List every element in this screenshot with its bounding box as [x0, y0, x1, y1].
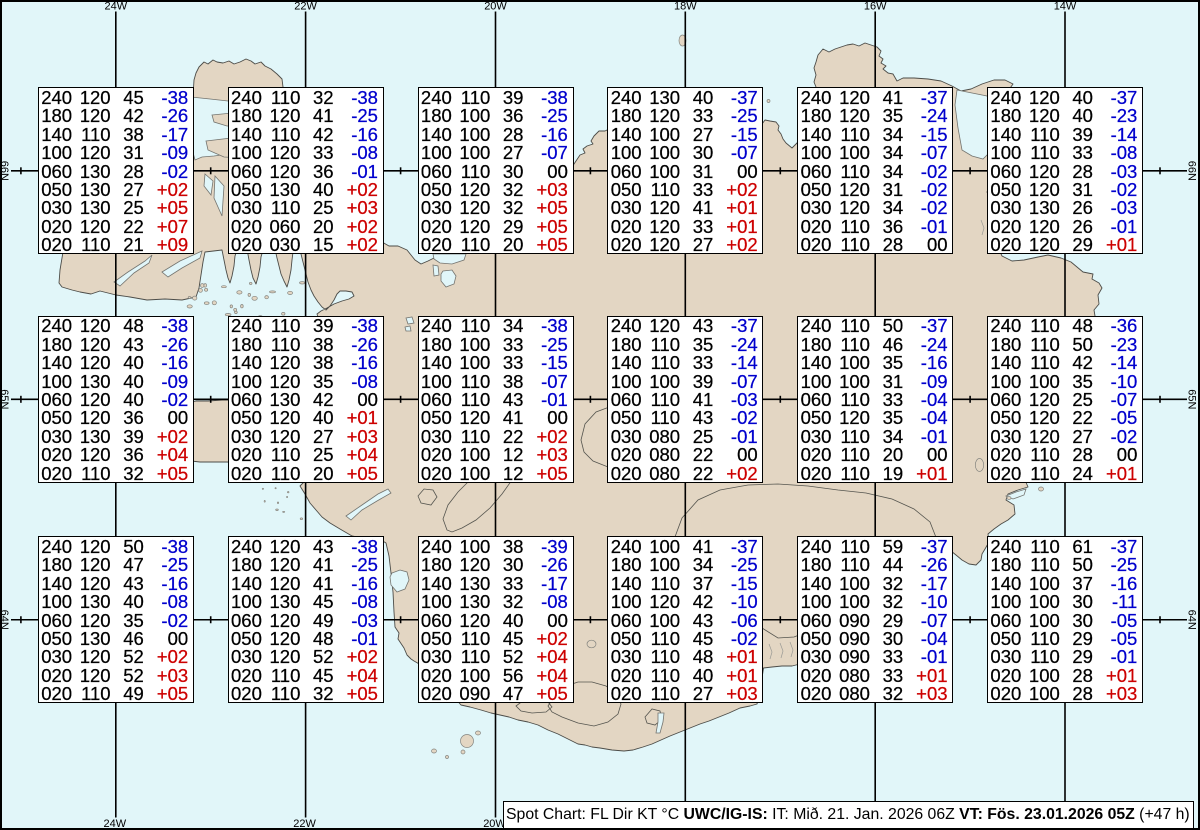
svg-text:14W: 14W — [1054, 1, 1077, 13]
svg-text:24W: 24W — [104, 1, 127, 13]
svg-text:22W: 22W — [294, 1, 317, 13]
svg-text:66N: 66N — [1186, 161, 1198, 181]
svg-text:16W: 16W — [864, 1, 887, 13]
svg-text:18W: 18W — [674, 1, 697, 13]
svg-text:64N: 64N — [1186, 610, 1198, 630]
svg-text:20W: 20W — [484, 1, 507, 13]
svg-text:65N: 65N — [1186, 389, 1198, 409]
